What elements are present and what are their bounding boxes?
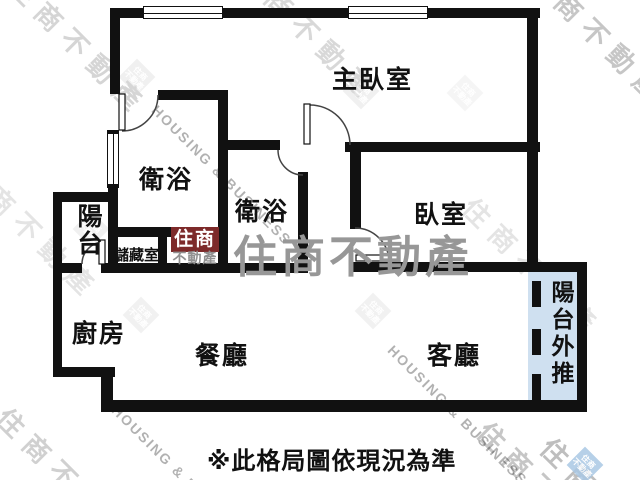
room-label-dining: 餐廳	[195, 336, 249, 372]
removed-wall-dash	[532, 281, 541, 307]
room-label-bedroom: 臥室	[414, 195, 468, 231]
door-arc-master-hall	[310, 105, 350, 145]
removed-wall-dash	[532, 329, 541, 355]
room-label-balcony-pushed-out: 陽台外推	[544, 280, 578, 388]
room-label-storage: 儲藏室	[114, 244, 159, 265]
room-label-living: 客廳	[427, 336, 481, 372]
window-top-left	[143, 6, 223, 19]
window-left-wall	[107, 130, 119, 188]
wall-kitchen-step-v	[101, 367, 113, 412]
wall-bottom	[101, 400, 587, 412]
brand-logo-main: 住商	[171, 227, 219, 252]
brand-logo-sub: 不動產	[171, 252, 219, 265]
wall-left-lower	[53, 192, 62, 377]
brand-seal-watermark: 住商不動產	[355, 293, 392, 330]
room-label-kitchen: 廚房	[72, 314, 126, 350]
room-label-bathroom2: 衛浴	[235, 192, 289, 228]
window-top-right	[348, 6, 428, 19]
room-label-bathroom1: 衛浴	[139, 160, 193, 196]
door-leaf-master-hall	[304, 104, 310, 144]
brand-seal-watermark: 住商不動產	[447, 75, 484, 112]
room-label-balcony: 陽台	[70, 203, 106, 257]
wall-right-upper	[527, 8, 538, 270]
floor-plan: 住商不動產 住商不動產 住商不動產 住商不動產 住商不動產 住商不動產 住商不動…	[0, 0, 640, 480]
wall-bedroom-left	[350, 142, 361, 229]
removed-wall-dash	[532, 374, 541, 401]
wall-bath1-right	[218, 90, 228, 273]
wall-bedrooms-divider	[345, 142, 540, 152]
brand-seal-watermark: 住商不動產	[123, 297, 160, 334]
wall-right-lower	[577, 262, 587, 412]
brand-logo: 住商 不動產	[171, 227, 219, 265]
wall-bath2-top	[225, 140, 280, 150]
wall-mid-divider-left	[62, 263, 82, 273]
caption-note: ※此格局圖依現況為準	[207, 441, 456, 476]
wall-left-upper	[110, 8, 120, 94]
wall-storage-right	[158, 237, 167, 265]
room-label-master-bedroom: 主臥室	[332, 60, 413, 96]
